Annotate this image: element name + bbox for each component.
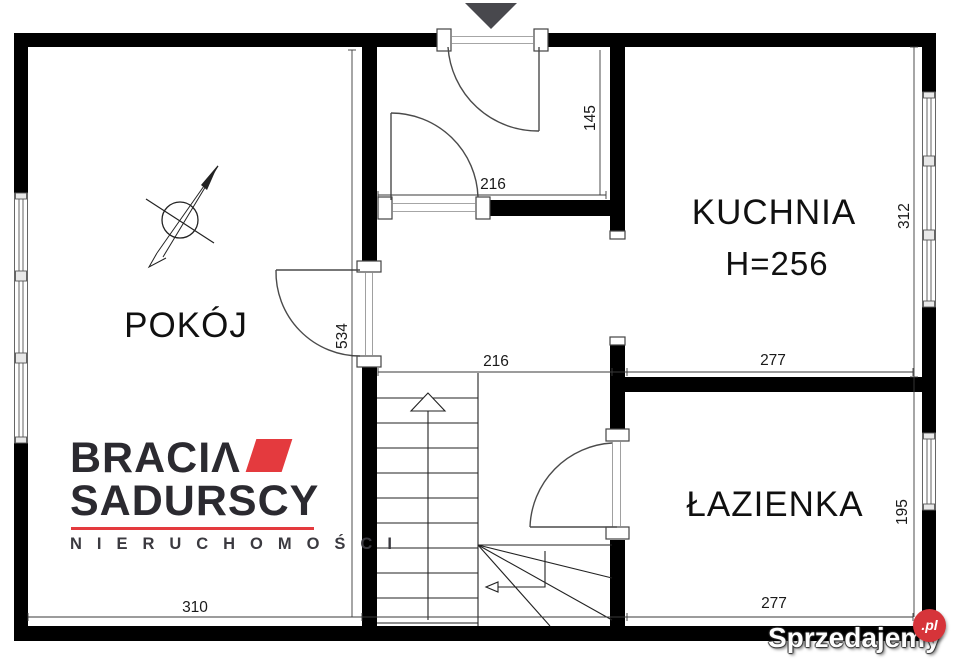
room-label-lazienka: ŁAZIENKA [686, 485, 863, 525]
logo-line1: BRACIΛ [70, 437, 241, 480]
door-bathroom [530, 443, 617, 527]
door-entrance [448, 47, 539, 131]
dimension-bathroom-width: 277 [761, 595, 787, 613]
dimension-kitchen-length: 312 [896, 203, 914, 229]
window-left [15, 193, 28, 443]
room-label-kuchnia: KUCHNIA [692, 193, 857, 233]
logo-red-parallelogram-icon [245, 439, 292, 472]
window-right-kitchen [923, 92, 936, 307]
dimension-corridor-width: 216 [483, 353, 509, 371]
room-height-note: H=256 [725, 245, 828, 283]
dimension-pokoj-width: 310 [182, 599, 208, 617]
watermark-sprzedajemy: Sprzedajemy .pl [768, 618, 960, 662]
logo-red-rule [71, 527, 314, 530]
window-right-bathroom [923, 433, 936, 510]
watermark-pl-badge: .pl [913, 609, 946, 642]
stairs [377, 373, 612, 626]
dimension-bathroom-length: 195 [894, 499, 912, 525]
dimension-kitchen-width: 277 [760, 352, 786, 370]
dimension-hall-depth: 145 [582, 105, 600, 131]
north-arrow-icon [146, 165, 218, 267]
dimension-pokoj-length: 534 [334, 323, 352, 349]
door-hall [391, 113, 478, 200]
logo-line3: N I E R U C H O M O Ś C I [70, 535, 397, 554]
dimension-hall-width: 216 [480, 176, 506, 194]
entrance-arrow-down-icon [465, 3, 517, 29]
room-label-pokoj: POKÓJ [124, 306, 248, 346]
agency-logo: BRACIΛ SADURSCY N I E R U C H O M O Ś C … [70, 437, 397, 554]
stairs-run-arrow-icon [486, 551, 545, 592]
stairs-up-arrow-icon [411, 393, 445, 620]
floor-plan-page: POKÓJ KUCHNIA H=256 ŁAZIENKA 216 145 216… [0, 0, 960, 666]
logo-line2: SADURSCY [70, 480, 397, 523]
